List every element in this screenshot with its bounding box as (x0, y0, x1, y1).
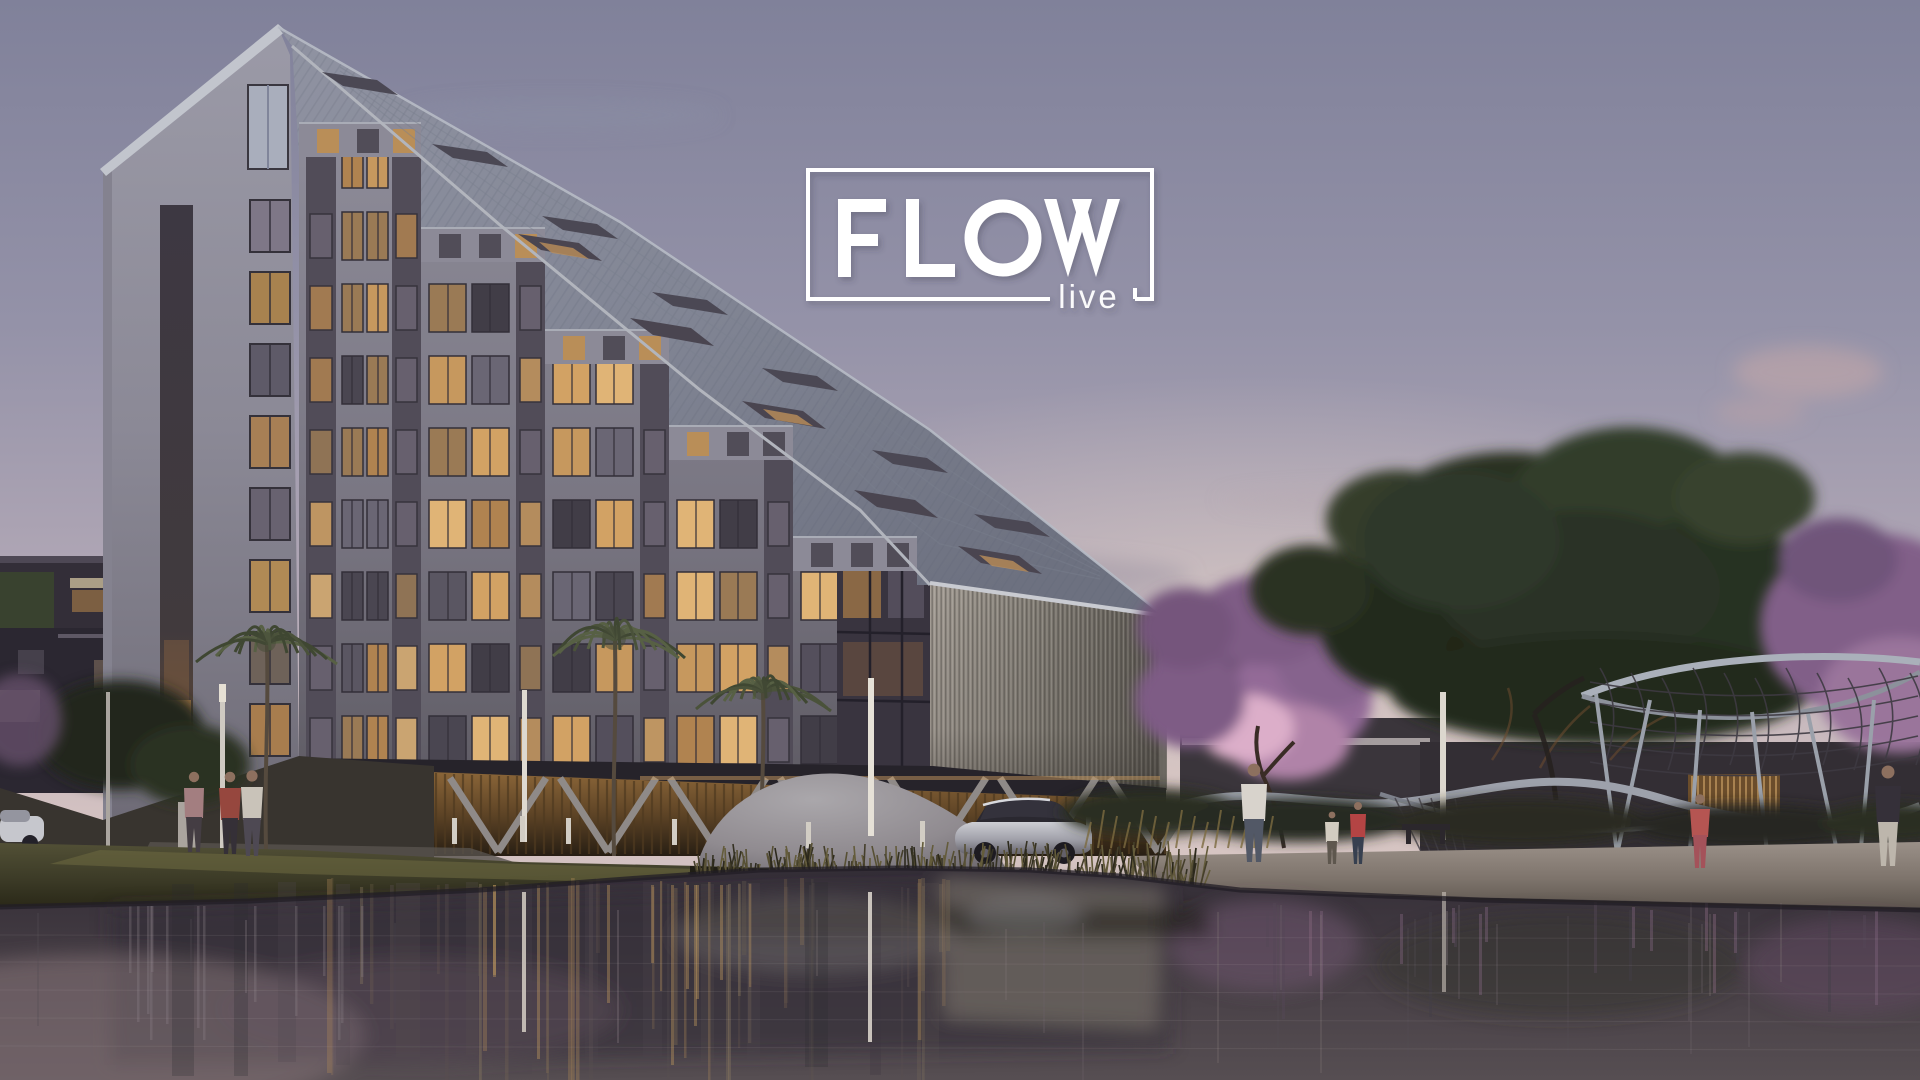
svg-text:live: live (1058, 278, 1120, 315)
